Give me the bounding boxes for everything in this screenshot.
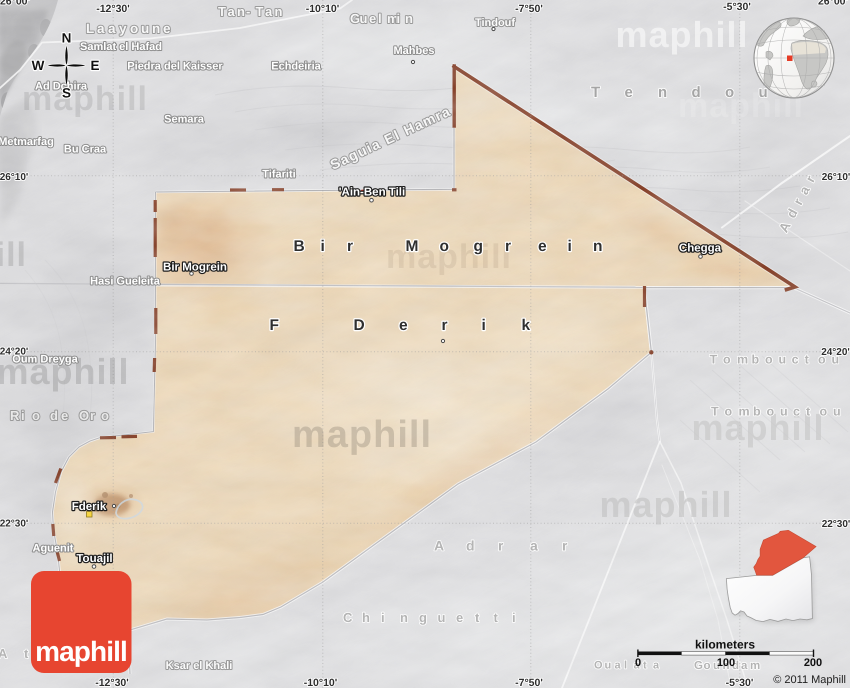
svg-text:Mahbes: Mahbes — [394, 45, 435, 57]
svg-text:'Ain-Ben Tili: 'Ain-Ben Tili — [339, 187, 405, 199]
svg-text:22°30': 22°30' — [0, 519, 28, 530]
svg-text:Tindouf: Tindouf — [475, 17, 515, 29]
svg-text:Chegga: Chegga — [679, 243, 722, 255]
svg-text:Touajil: Touajil — [76, 553, 112, 565]
svg-text:-12°30': -12°30' — [96, 3, 130, 15]
svg-text:-10°10': -10°10' — [304, 677, 338, 688]
svg-text:Samlat el Hafad: Samlat el Hafad — [80, 41, 162, 53]
svg-text:Bu Craa: Bu Craa — [64, 144, 107, 156]
svg-text:-7°50': -7°50' — [515, 677, 543, 688]
svg-text:maphill: maphill — [35, 636, 127, 667]
svg-text:maphill: maphill — [0, 236, 27, 274]
svg-text:Fderik: Fderik — [72, 501, 107, 513]
svg-text:A: A — [0, 646, 8, 661]
svg-text:Bir Mogrein: Bir Mogrein — [163, 262, 227, 274]
svg-text:100: 100 — [717, 657, 735, 669]
svg-text:-7°50': -7°50' — [515, 3, 543, 15]
svg-text:Aguenit: Aguenit — [33, 543, 74, 555]
svg-text:26°10': 26°10' — [822, 172, 850, 183]
svg-text:26°00': 26°00' — [818, 0, 848, 8]
svg-text:200: 200 — [804, 657, 822, 669]
svg-text:maphill: maphill — [599, 484, 732, 525]
svg-text:maphill: maphill — [615, 14, 748, 55]
svg-text:Piedra del Kaisser: Piedra del Kaisser — [127, 61, 223, 73]
svg-text:Echdeiria: Echdeiria — [271, 61, 321, 73]
svg-text:N: N — [62, 31, 72, 46]
svg-text:Tifariti: Tifariti — [262, 169, 295, 181]
svg-text:W: W — [32, 58, 45, 73]
svg-text:S: S — [62, 86, 71, 101]
svg-text:-12°30': -12°30' — [95, 677, 129, 688]
svg-text:24°20': 24°20' — [0, 347, 28, 358]
svg-text:Metmarfag: Metmarfag — [0, 136, 54, 148]
svg-text:26°00': 26°00' — [0, 0, 30, 8]
svg-text:t: t — [24, 646, 29, 661]
svg-text:-10°10': -10°10' — [306, 3, 340, 15]
svg-text:maphill: maphill — [292, 414, 432, 456]
svg-text:0: 0 — [635, 657, 641, 669]
svg-text:Semara: Semara — [164, 114, 205, 126]
svg-text:kilometers: kilometers — [695, 638, 755, 652]
svg-text:-5°30': -5°30' — [723, 1, 751, 13]
svg-text:Ksar el Khali: Ksar el Khali — [166, 660, 233, 672]
svg-text:E: E — [90, 58, 99, 73]
svg-text:Hasi Gueleita: Hasi Gueleita — [90, 276, 161, 288]
svg-text:22°30': 22°30' — [822, 519, 850, 530]
svg-text:24°20': 24°20' — [821, 347, 850, 358]
svg-text:26°10': 26°10' — [0, 172, 28, 183]
svg-text:-5°30': -5°30' — [726, 677, 754, 688]
svg-text:© 2011 Maphill: © 2011 Maphill — [773, 674, 846, 686]
